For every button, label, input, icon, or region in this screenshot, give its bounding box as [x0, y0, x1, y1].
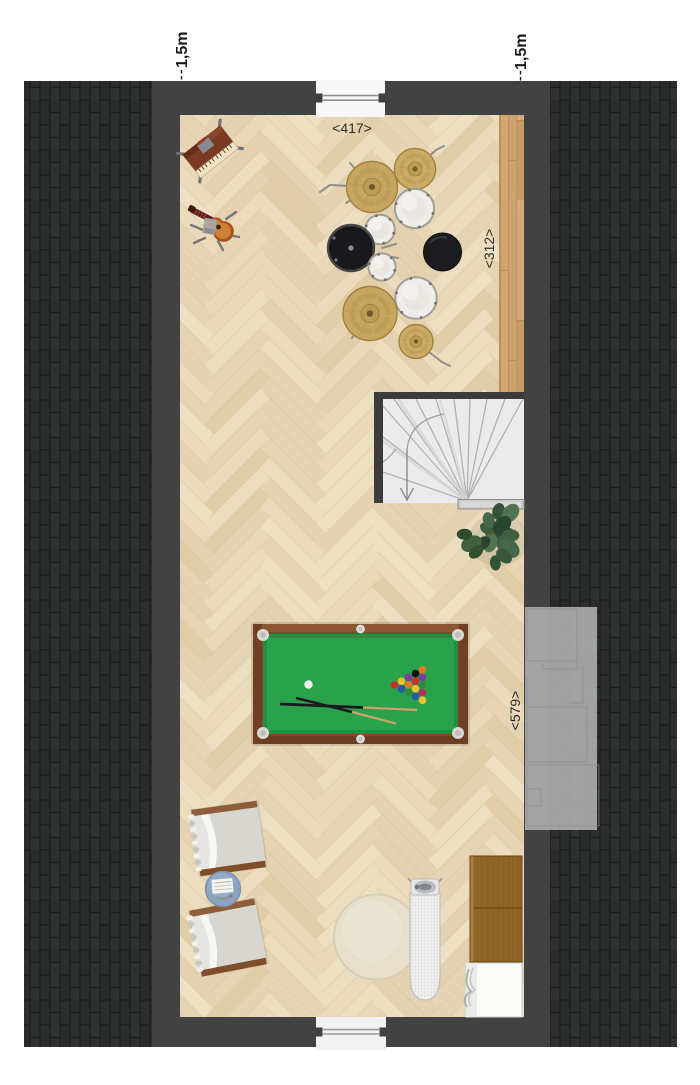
svg-text:<312>: <312> — [481, 229, 497, 269]
svg-text:<579>: <579> — [507, 691, 523, 731]
svg-text:<417>: <417> — [332, 120, 372, 136]
svg-text:1,5m: 1,5m — [174, 32, 191, 68]
svg-text:1,5m: 1,5m — [513, 34, 530, 70]
